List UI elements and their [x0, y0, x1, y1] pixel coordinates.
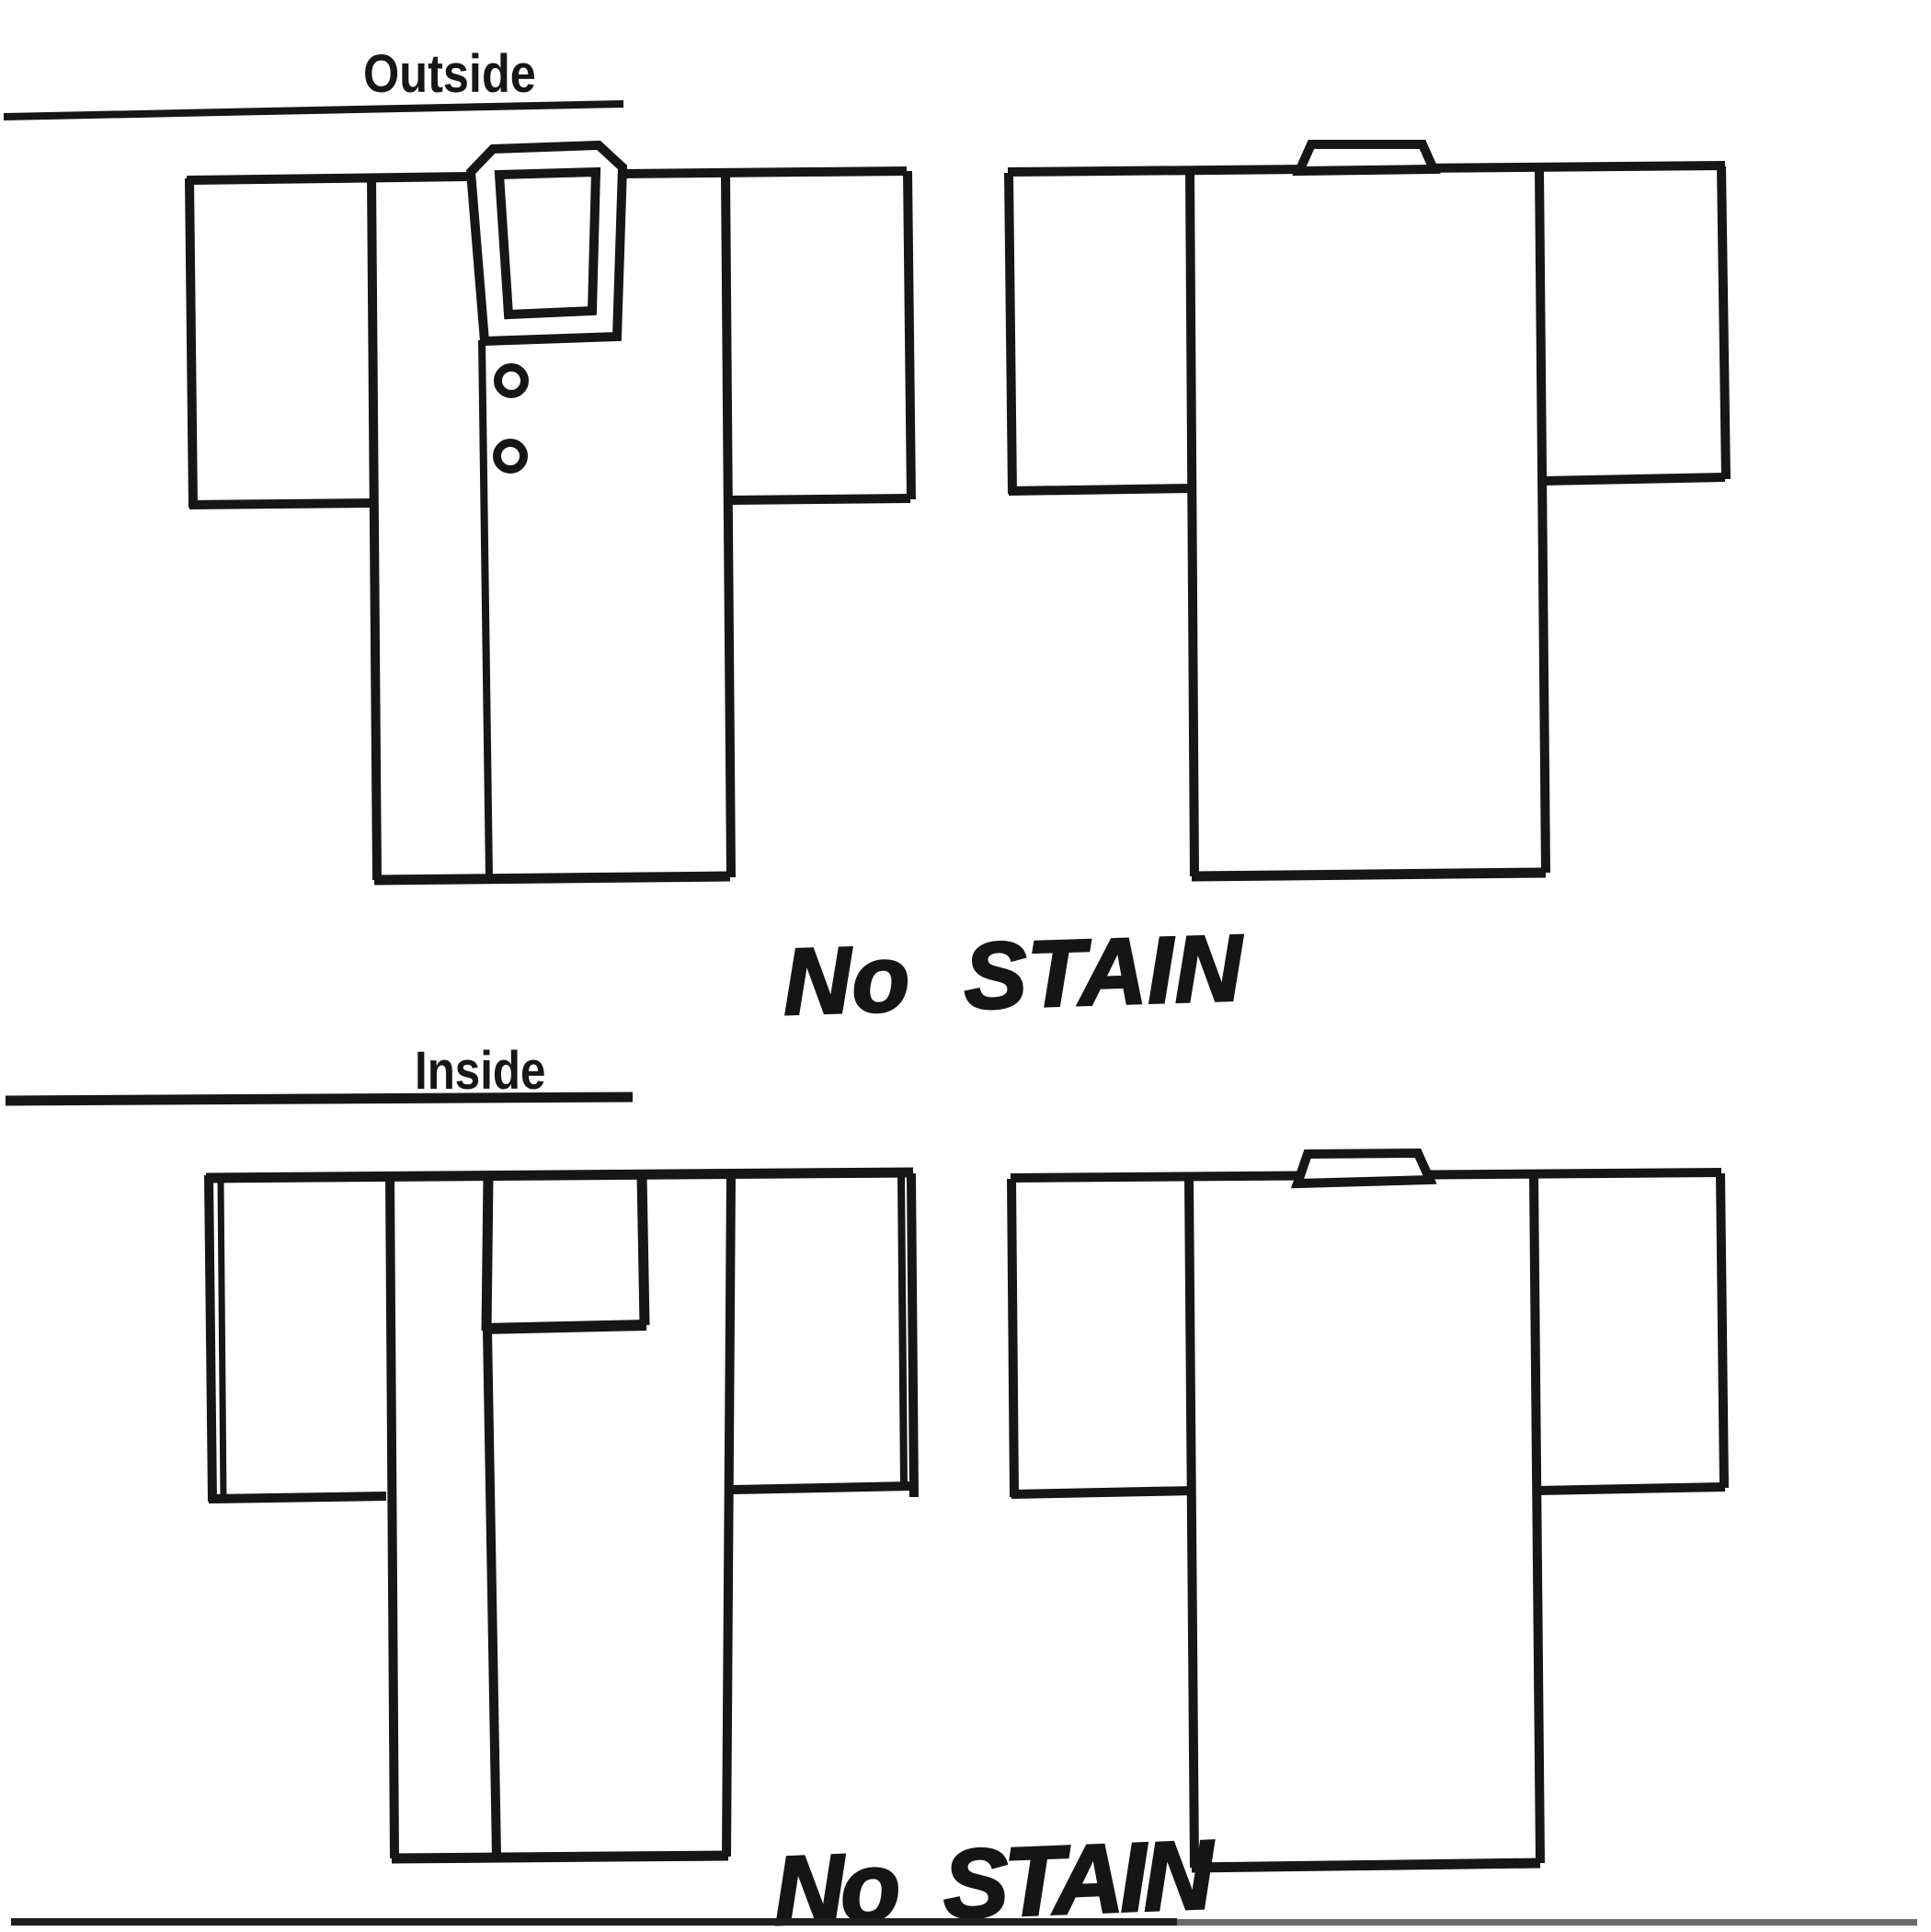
svg-text:No STAIN: No STAIN [782, 915, 1246, 1035]
svg-text:Outside: Outside [363, 44, 536, 104]
svg-text:Inside: Inside [415, 1041, 545, 1101]
svg-text:No STAIN: No STAIN [771, 1821, 1217, 1932]
